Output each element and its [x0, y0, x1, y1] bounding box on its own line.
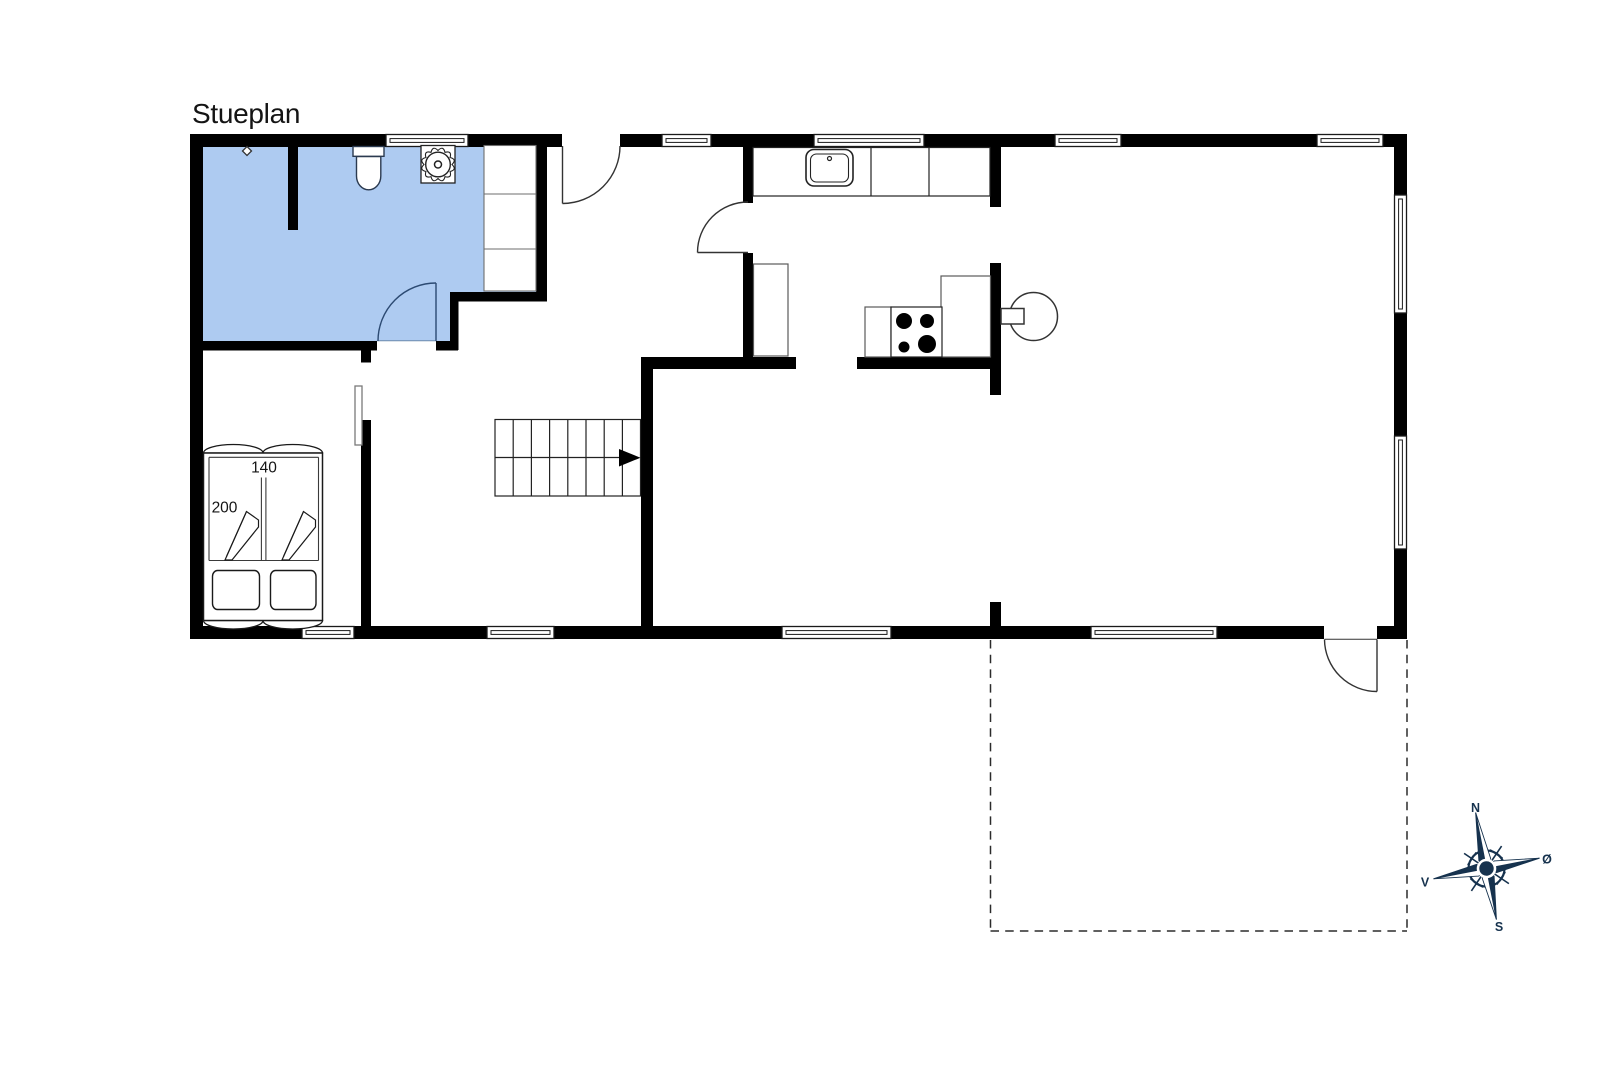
svg-text:Ø: Ø [1542, 853, 1552, 867]
svg-text:N: N [1471, 801, 1480, 815]
svg-text:140: 140 [251, 460, 277, 477]
svg-text:S: S [1495, 920, 1503, 934]
svg-text:Stueplan: Stueplan [192, 98, 300, 129]
svg-text:200: 200 [212, 500, 238, 517]
svg-text:V: V [1421, 876, 1430, 890]
